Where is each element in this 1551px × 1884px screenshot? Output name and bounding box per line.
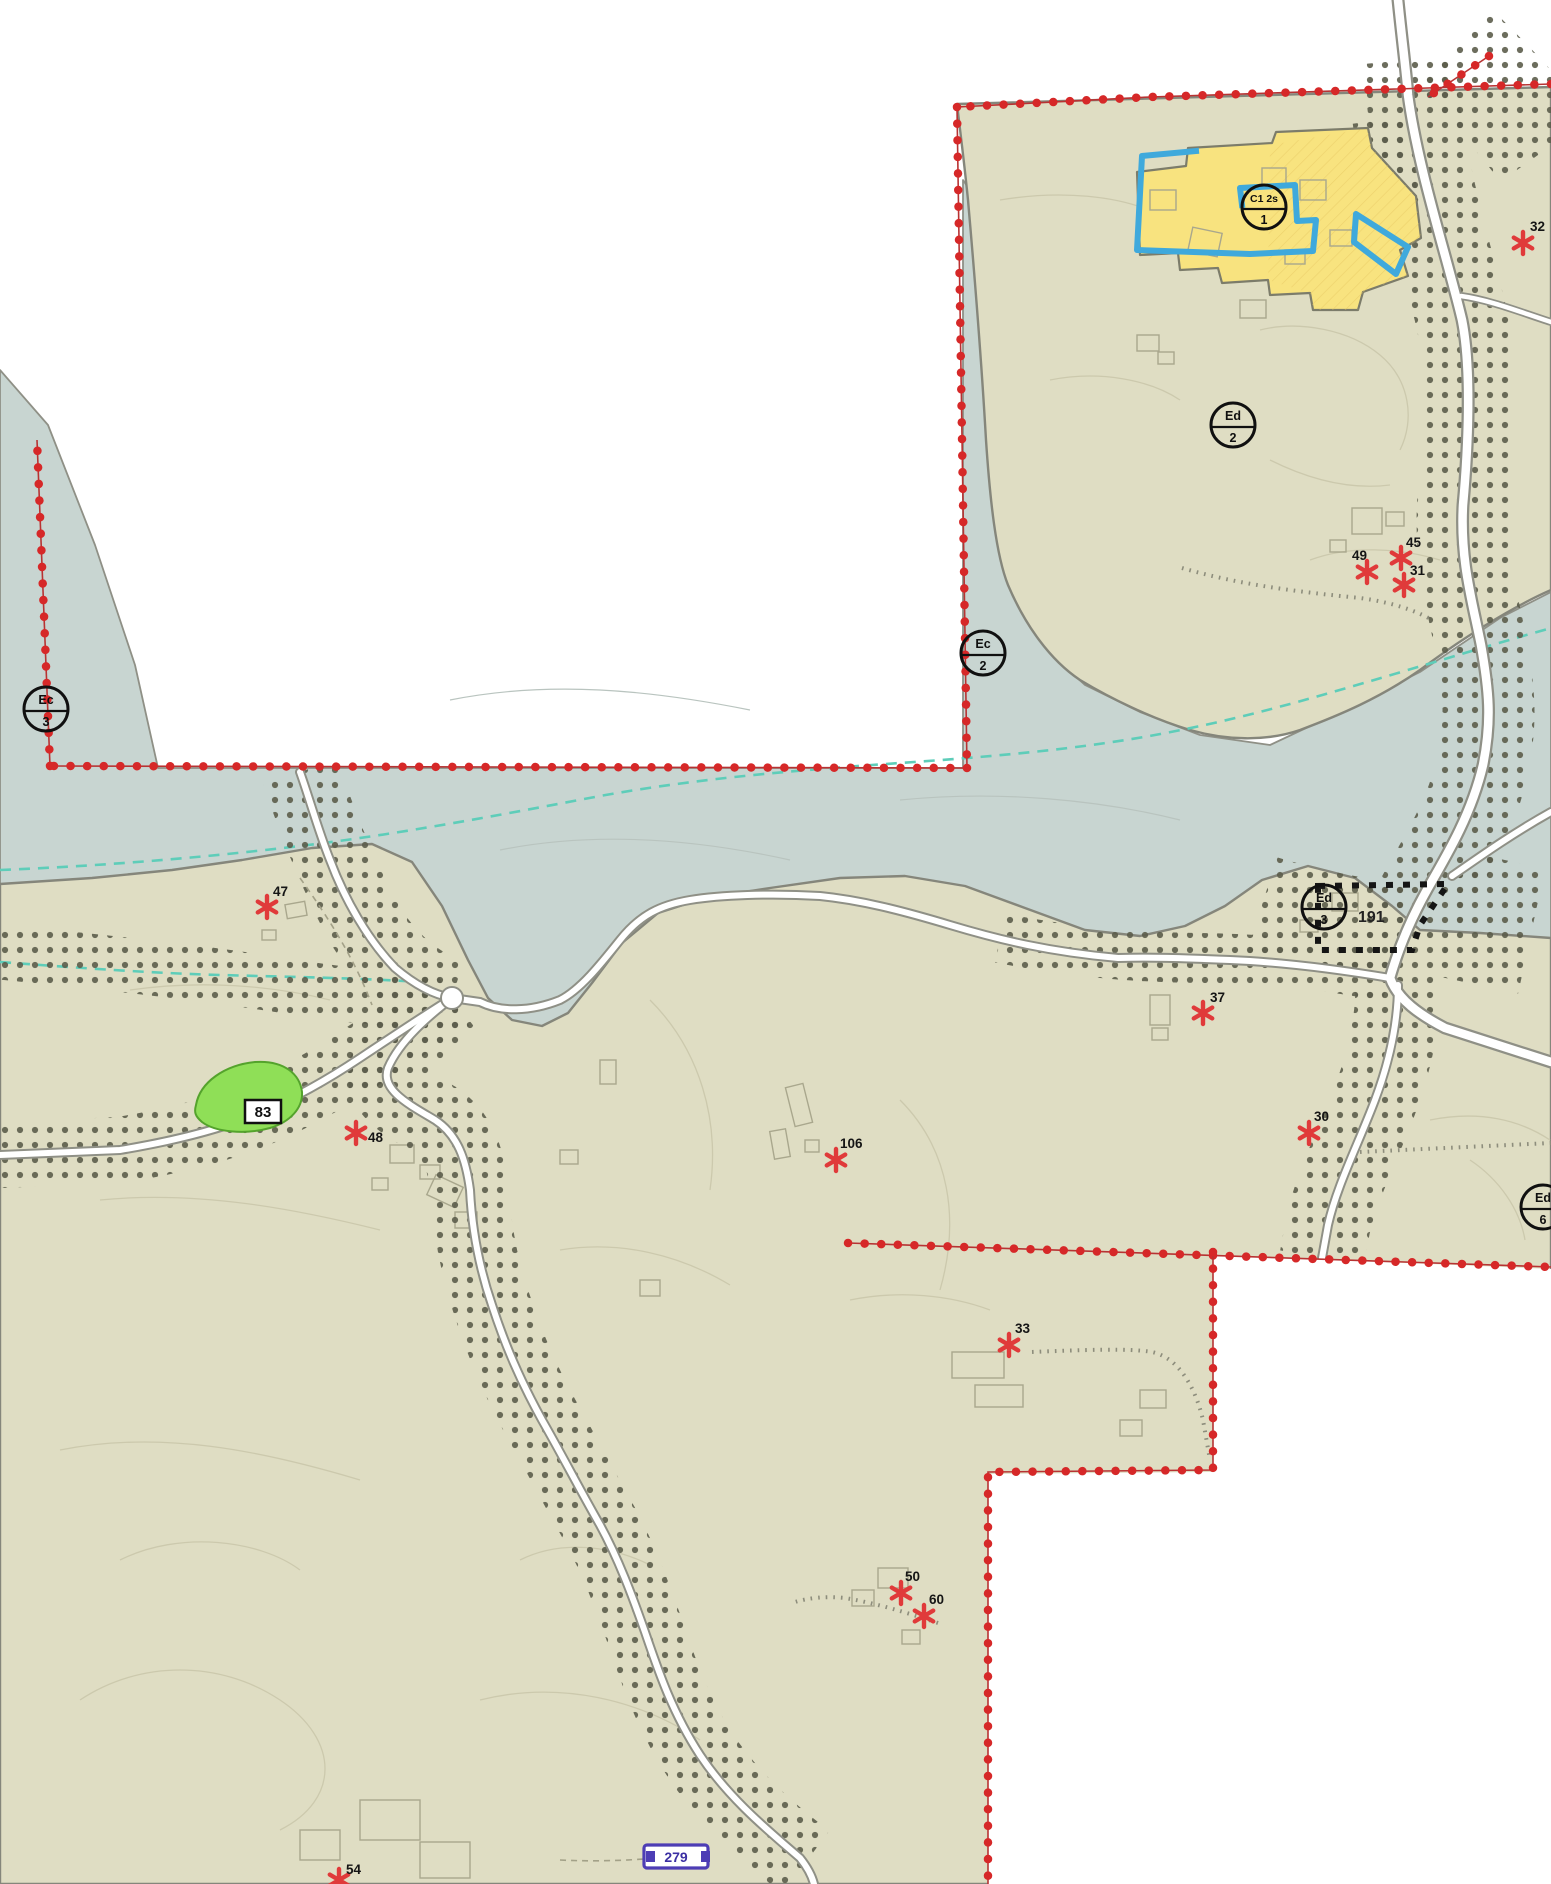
- zone-number: 2: [1230, 431, 1237, 445]
- zone-code: C1 2s: [1250, 193, 1278, 205]
- poi-marker-number: 32: [1530, 219, 1545, 234]
- zone-number: 1: [1261, 213, 1268, 227]
- zone-number: 6: [1540, 1213, 1547, 1227]
- poi-marker-number: 60: [929, 1592, 944, 1607]
- poi-marker-number: 48: [368, 1130, 384, 1145]
- zone-code: Ec: [975, 637, 990, 651]
- zone-number: 3: [43, 715, 50, 729]
- poi-marker-number: 50: [905, 1569, 920, 1584]
- poi-marker-number: 37: [1210, 990, 1225, 1005]
- poi-marker-number: 45: [1406, 535, 1422, 550]
- zone-number: 3: [1321, 913, 1328, 927]
- zone-number: 2: [980, 659, 987, 673]
- road-badge-number: 279: [664, 1849, 688, 1865]
- road-junction: [441, 987, 463, 1009]
- poi-marker-number: 106: [840, 1136, 863, 1151]
- zone-code: Ec: [38, 693, 53, 707]
- road-badge-279[interactable]: 279: [644, 1845, 710, 1868]
- poi-marker-number: 47: [273, 884, 288, 899]
- parcel-191-number: 191: [1358, 909, 1385, 926]
- poi-marker-number: 30: [1314, 1109, 1329, 1124]
- zone-code: Ed: [1316, 891, 1332, 905]
- poi-marker-number: 54: [346, 1862, 362, 1877]
- poi-marker-number: 49: [1352, 548, 1367, 563]
- map-canvas[interactable]: 83 191 279 C1 2s1Ed2Ec2Ec3Ed3Ed6 3245493…: [0, 0, 1551, 1884]
- zone-code: Ed: [1225, 409, 1241, 423]
- poi-marker-number: 33: [1015, 1321, 1031, 1336]
- poi-marker-number: 31: [1410, 563, 1426, 578]
- green-area-number: 83: [255, 1104, 272, 1121]
- zone-code: Ed: [1535, 1191, 1551, 1205]
- zoning-map[interactable]: 83 191 279 C1 2s1Ed2Ec2Ec3Ed3Ed6 3245493…: [0, 0, 1551, 1884]
